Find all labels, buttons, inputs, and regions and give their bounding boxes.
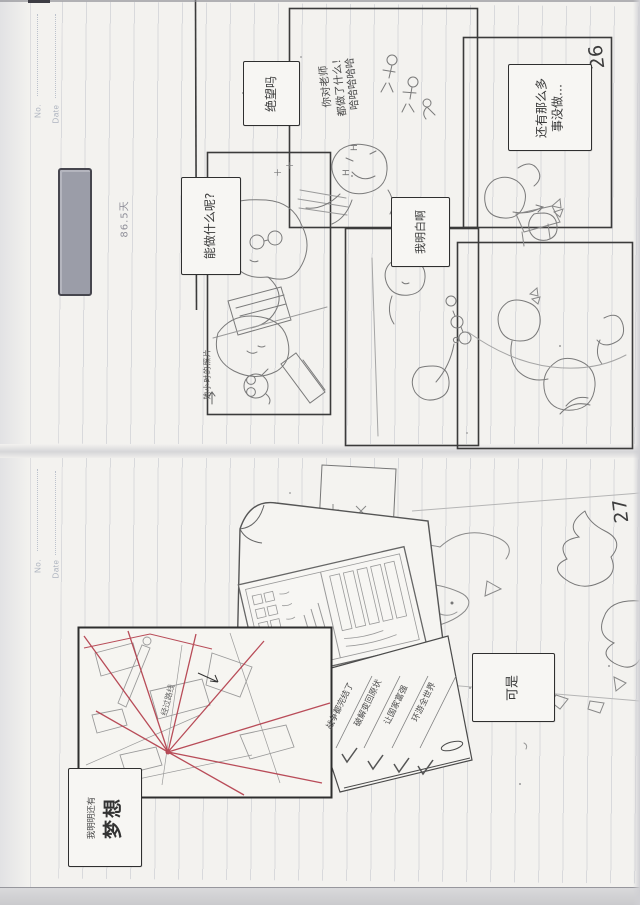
no-label-26: No. bbox=[34, 104, 43, 118]
breath-mark: H bbox=[350, 144, 360, 151]
date-label-26: Date bbox=[52, 105, 61, 124]
speech-bubble-but: 可是 bbox=[472, 653, 555, 722]
scanned-notebook: No. Date bbox=[0, 0, 640, 905]
scan-top-mark bbox=[28, 0, 50, 3]
speech-bubble-what-can-do: 能做什么呢? bbox=[181, 177, 241, 275]
speech-bubble-despair: 绝望吗 bbox=[243, 61, 300, 126]
sparkle-mark: ＋ bbox=[273, 168, 284, 177]
date-label-27: Date bbox=[52, 560, 61, 579]
breath-mark: H bbox=[342, 169, 352, 176]
dream-text: 我明明还有 梦想 bbox=[85, 796, 125, 839]
speech-bubble-so-much-left: 还有那么多 事没做… bbox=[508, 64, 592, 151]
notebook-tab bbox=[58, 168, 92, 296]
scan-right-edge bbox=[633, 0, 640, 905]
date-dotted-line-27 bbox=[55, 471, 56, 555]
no-dotted-line-26 bbox=[37, 14, 38, 96]
no-label-27: No. bbox=[34, 559, 43, 573]
scan-top-edge bbox=[0, 0, 640, 2]
days-note: 86.5天 bbox=[116, 200, 131, 237]
speech-bubble-dream: 我明明还有 梦想 bbox=[68, 768, 142, 867]
no-dotted-line-27 bbox=[37, 469, 38, 551]
photo-note: 她小时的照片 bbox=[202, 349, 213, 400]
sparkle-mark: ＋ bbox=[285, 161, 296, 170]
speech-bubble-i-see: 我明白啊 bbox=[391, 197, 450, 267]
date-dotted-line-26 bbox=[55, 14, 56, 98]
page-number-27: 27 bbox=[609, 498, 634, 525]
